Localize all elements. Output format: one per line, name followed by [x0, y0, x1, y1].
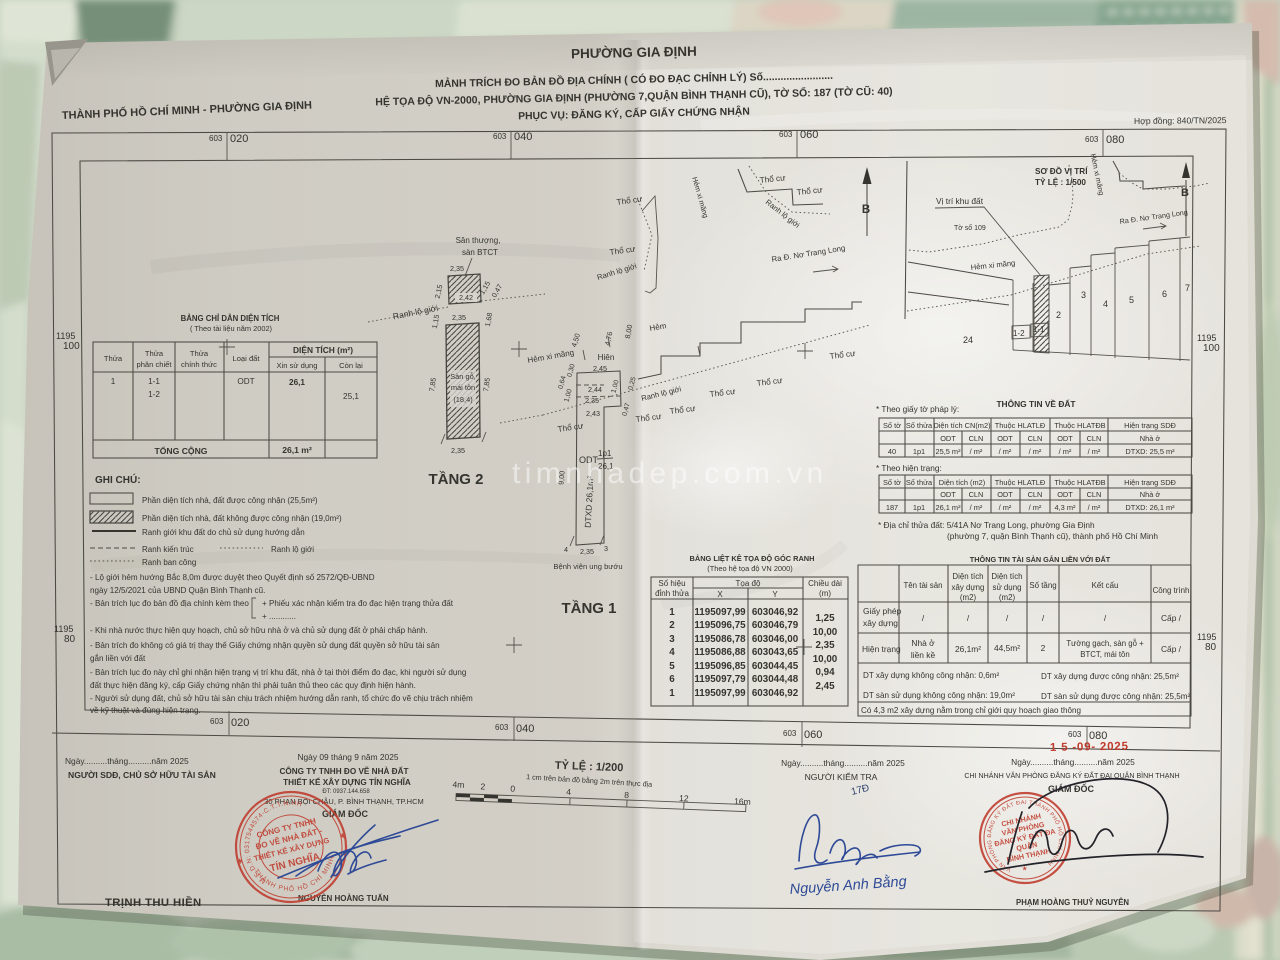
- svg-text:10,00: 10,00: [813, 654, 838, 665]
- svg-text:1195096,75: 1195096,75: [694, 620, 746, 631]
- svg-text:26,1m²: 26,1m²: [955, 644, 981, 654]
- svg-text:Tờ số 109: Tờ số 109: [954, 223, 986, 232]
- svg-text:7: 7: [1185, 283, 1190, 293]
- svg-text:2: 2: [1056, 310, 1061, 320]
- svg-text:Loại đất: Loại đất: [232, 354, 260, 363]
- svg-text:1195097,99: 1195097,99: [694, 688, 746, 699]
- svg-text:Công trình: Công trình: [1153, 586, 1190, 595]
- svg-text:Ngày 09 tháng 9 năm 2025: Ngày 09 tháng 9 năm 2025: [297, 752, 398, 762]
- svg-text:- Người sử dụng đất, chủ sở hữ: - Người sử dụng đất, chủ sở hữu tài sản …: [90, 694, 473, 703]
- svg-text:TỶ LỆ : 1/500: TỶ LỆ : 1/500: [1035, 176, 1086, 187]
- svg-text:+ Phiếu xác nhận kiểm tra đo đ: + Phiếu xác nhận kiểm tra đo đạc hiện tr…: [262, 599, 454, 608]
- svg-text:1195: 1195: [54, 624, 73, 634]
- svg-text:603046,00: 603046,00: [752, 634, 799, 645]
- svg-text:/ m²: / m²: [1088, 503, 1101, 512]
- svg-text:1: 1: [669, 607, 675, 618]
- svg-text:Phần diện tích nhà, đất không: Phần diện tích nhà, đất không được công …: [142, 514, 342, 523]
- svg-text:DT xây dựng không công nhận: 0: DT xây dựng không công nhận: 0,6m²: [863, 671, 1000, 680]
- svg-text:Thuộc HLATLĐ: Thuộc HLATLĐ: [995, 478, 1045, 487]
- svg-text:1195086,78: 1195086,78: [694, 634, 746, 645]
- svg-text:Ranh ban công: Ranh ban công: [142, 558, 196, 567]
- svg-text:ODT: ODT: [940, 434, 956, 443]
- svg-text:đỉnh thửa: đỉnh thửa: [655, 589, 689, 598]
- svg-text:8: 8: [624, 790, 629, 800]
- svg-text:1195: 1195: [1197, 333, 1216, 343]
- svg-text:(m): (m): [819, 589, 831, 598]
- svg-text:- Bản trích lục đo bản đồ địa: - Bản trích lục đo bản đồ địa chính kèm …: [90, 599, 249, 608]
- svg-text:Hiên: Hiên: [598, 353, 615, 362]
- svg-text:Còn lại: Còn lại: [339, 361, 363, 370]
- svg-text:DT xây dựng được công nhận: 25: DT xây dựng được công nhận: 25,5m²: [1041, 672, 1179, 681]
- svg-text:Tên tài sản: Tên tài sản: [903, 581, 942, 590]
- svg-text:Số tờ: Số tờ: [883, 421, 901, 430]
- svg-text:5: 5: [669, 661, 675, 672]
- svg-text:2: 2: [669, 620, 675, 631]
- svg-text:603046,92: 603046,92: [752, 688, 799, 699]
- svg-text:4: 4: [1103, 299, 1108, 309]
- svg-text:1 5 -09- 2025: 1 5 -09- 2025: [1050, 741, 1129, 754]
- svg-text:Cấp /: Cấp /: [1161, 644, 1182, 654]
- svg-text:ĐT: 0937.144.658: ĐT: 0937.144.658: [322, 789, 370, 795]
- svg-text:B: B: [1181, 187, 1189, 199]
- svg-text:603: 603: [495, 723, 509, 732]
- svg-text:Giấy phép: Giấy phép: [863, 606, 902, 616]
- svg-text:+ ............: + ............: [262, 612, 296, 621]
- svg-text:Số tầng: Số tầng: [1029, 581, 1056, 590]
- svg-text:24: 24: [963, 335, 973, 345]
- svg-text:/ m²: / m²: [970, 447, 983, 456]
- svg-text:2,44: 2,44: [588, 385, 602, 394]
- svg-text:040: 040: [514, 131, 532, 143]
- svg-text:Sân thượng,: Sân thượng,: [456, 236, 501, 245]
- svg-text:PHẠM HOÀNG THUỶ NGUYÊN: PHẠM HOÀNG THUỶ NGUYÊN: [1016, 898, 1129, 907]
- svg-text:603046,92: 603046,92: [752, 607, 799, 618]
- svg-text:1-1: 1-1: [1033, 325, 1045, 334]
- svg-text:4m: 4m: [452, 779, 464, 789]
- svg-text:020: 020: [231, 717, 249, 729]
- svg-text:Nhà ở: Nhà ở: [1140, 434, 1161, 443]
- svg-text:DTXD: 25,5 m²: DTXD: 25,5 m²: [1125, 447, 1175, 456]
- svg-text:phân chiết: phân chiết: [136, 360, 172, 369]
- svg-text:2,35: 2,35: [450, 264, 464, 273]
- svg-text:3: 3: [669, 634, 675, 645]
- svg-text:Hiện trạng: Hiện trạng: [862, 644, 901, 654]
- svg-text:2,43: 2,43: [586, 409, 600, 418]
- svg-text:(m2): (m2): [960, 593, 977, 602]
- svg-text:ODT: ODT: [1057, 434, 1073, 443]
- svg-text:đất thực hiện đăng ký, cấp Giấ: đất thực hiện đăng ký, cấp Giấy chứng nh…: [90, 681, 416, 690]
- svg-text:- Bản trích đo không có giá tr: - Bản trích đo không có giá trị thay thế…: [90, 641, 440, 650]
- svg-text:Bệnh viện ung bướu: Bệnh viện ung bướu: [553, 562, 622, 571]
- svg-text:Sàn gỗ,: Sàn gỗ,: [450, 372, 475, 381]
- svg-text:CLN: CLN: [1028, 434, 1043, 443]
- svg-text:2,35: 2,35: [815, 640, 835, 651]
- svg-text:ODT: ODT: [237, 377, 254, 386]
- svg-text:Y: Y: [772, 590, 778, 599]
- svg-text:Số tờ: Số tờ: [883, 478, 901, 487]
- svg-text:603: 603: [779, 130, 793, 139]
- svg-text:2,45: 2,45: [815, 681, 835, 692]
- svg-text:SƠ ĐỒ VỊ TRÍ: SƠ ĐỒ VỊ TRÍ: [1035, 165, 1088, 176]
- svg-text:CLN: CLN: [969, 490, 984, 499]
- svg-text:(phường 7, quận Bình Thạnh cũ): (phường 7, quận Bình Thạnh cũ), thành ph…: [947, 531, 1158, 541]
- svg-text:chính thức: chính thức: [181, 360, 217, 369]
- svg-text:603: 603: [210, 717, 224, 726]
- svg-text:/ m²: / m²: [1059, 447, 1072, 456]
- svg-text:TỶ LỆ : 1/200: TỶ LỆ : 1/200: [555, 759, 624, 774]
- svg-text:80: 80: [64, 634, 76, 645]
- svg-text:TẦNG 2: TẦNG 2: [428, 471, 483, 488]
- svg-text:/ m²: / m²: [1029, 447, 1042, 456]
- svg-text:Thuộc HLATĐB: Thuộc HLATĐB: [1054, 421, 1105, 430]
- svg-text:10,00: 10,00: [813, 627, 838, 638]
- svg-text:CLN: CLN: [1087, 490, 1102, 499]
- svg-text:1195097,99: 1195097,99: [694, 607, 746, 618]
- svg-text:603: 603: [783, 729, 797, 738]
- svg-text:6: 6: [669, 674, 675, 685]
- svg-text:603: 603: [493, 132, 507, 141]
- svg-text:16m: 16m: [734, 796, 751, 807]
- svg-text:BẢNG CHỈ DẪN DIỆN TÍCH: BẢNG CHỈ DẪN DIỆN TÍCH: [181, 314, 280, 323]
- svg-text:603: 603: [1085, 135, 1099, 144]
- svg-text:Số thửa: Số thửa: [906, 421, 933, 430]
- svg-text:1195096,85: 1195096,85: [694, 661, 746, 672]
- svg-text:4: 4: [566, 787, 571, 797]
- svg-text:* Địa chỉ thửa đất: 5/41A Nơ T: * Địa chỉ thửa đất: 5/41A Nơ Trang Long,…: [878, 520, 1095, 530]
- svg-text:Nhà ở: Nhà ở: [1140, 490, 1161, 499]
- svg-text:ngày 12/5/2021 của UBND Quận B: ngày 12/5/2021 của UBND Quận Bình Thạnh …: [90, 586, 265, 595]
- svg-text:100: 100: [63, 341, 80, 352]
- svg-text:Diện tích: Diện tích: [952, 572, 983, 581]
- svg-text:40: 40: [888, 447, 896, 456]
- svg-text:1195: 1195: [1197, 632, 1216, 642]
- svg-text:Thửa: Thửa: [104, 354, 123, 363]
- svg-text:1195097,79: 1195097,79: [694, 674, 746, 685]
- svg-text:1195086,88: 1195086,88: [694, 647, 746, 658]
- svg-text:TẦNG 1: TẦNG 1: [561, 600, 616, 617]
- svg-text:040: 040: [516, 723, 534, 735]
- svg-text:1p1: 1p1: [913, 503, 925, 512]
- svg-text:mái tôn: mái tôn: [451, 383, 475, 392]
- svg-text:(Theo hệ tọa độ VN 2000): (Theo hệ tọa độ VN 2000): [707, 564, 792, 573]
- svg-text:sử dụng: sử dụng: [993, 583, 1022, 592]
- svg-text:603043,65: 603043,65: [752, 647, 799, 658]
- svg-text:THÔNG TIN VỀ ĐẤT: THÔNG TIN VỀ ĐẤT: [996, 398, 1076, 409]
- svg-text:4,3 m²: 4,3 m²: [1055, 503, 1076, 512]
- svg-text:Hiện trạng SDĐ: Hiện trạng SDĐ: [1124, 478, 1176, 487]
- svg-text:CHI NHÁNH VĂN PHÒNG ĐĂNG KÝ ĐẤ: CHI NHÁNH VĂN PHÒNG ĐĂNG KÝ ĐẤT ĐAI QUẬN…: [964, 770, 1179, 780]
- svg-text:1-1: 1-1: [148, 377, 160, 386]
- svg-text:ODT: ODT: [997, 490, 1013, 499]
- svg-text:2: 2: [1041, 643, 1046, 653]
- svg-text:CLN: CLN: [1028, 490, 1043, 499]
- svg-text:B: B: [862, 204, 870, 216]
- svg-text:Tường gạch, sàn gỗ +: Tường gạch, sàn gỗ +: [1066, 639, 1144, 648]
- svg-text:080: 080: [1106, 134, 1124, 146]
- svg-text:TRỊNH THU HIỀN: TRỊNH THU HIỀN: [105, 896, 202, 909]
- svg-text:Chiều dài: Chiều dài: [808, 579, 842, 588]
- svg-text:Vị trí khu đất: Vị trí khu đất: [936, 196, 984, 206]
- svg-text:Nhà ở: Nhà ở: [911, 638, 935, 648]
- svg-text:BTCT, mái tôn: BTCT, mái tôn: [1080, 650, 1129, 659]
- svg-text:0: 0: [510, 784, 515, 794]
- svg-text:(18,4): (18,4): [453, 395, 472, 404]
- svg-text:DIỆN TÍCH (m²): DIỆN TÍCH (m²): [293, 344, 353, 355]
- svg-text:/ m²: / m²: [999, 447, 1012, 456]
- svg-text:4: 4: [669, 647, 675, 658]
- svg-text:BẢNG LIỆT KÊ TỌA ĐỘ GÓC RANH: BẢNG LIỆT KÊ TỌA ĐỘ GÓC RANH: [690, 554, 815, 563]
- svg-text:xây dựng: xây dựng: [952, 583, 985, 592]
- svg-text:603: 603: [209, 134, 223, 143]
- svg-text:5: 5: [1129, 295, 1134, 305]
- svg-text:- Khi nhà nước thực hiện quy h: - Khi nhà nước thực hiện quy hoạch, chủ …: [90, 626, 428, 635]
- svg-text:1,25: 1,25: [815, 613, 835, 624]
- svg-text:Thuộc HLATĐB: Thuộc HLATĐB: [1054, 478, 1105, 487]
- svg-text:25,5 m²: 25,5 m²: [935, 447, 961, 456]
- svg-text:2,35: 2,35: [451, 446, 465, 455]
- svg-text:/ m²: / m²: [1088, 447, 1101, 456]
- svg-text:( Theo tài liệu năm 2002): ( Theo tài liệu năm 2002): [190, 324, 272, 333]
- svg-text:- Lộ giới hẻm hướng Bắc 8,0m đ: - Lộ giới hẻm hướng Bắc 8,0m được duyệt …: [90, 573, 375, 582]
- svg-text:100: 100: [1203, 343, 1220, 354]
- svg-text:Ranh kiến trúc: Ranh kiến trúc: [142, 545, 194, 554]
- svg-text:DT sàn sử dụng được công nhận:: DT sàn sử dụng được công nhận: 25,5m²: [1041, 692, 1190, 701]
- svg-text:Phần diện tích nhà, đất được c: Phần diện tích nhà, đất được công nhận (…: [142, 496, 318, 505]
- svg-text:- Bản trích lục đo này chỉ ghi: - Bản trích lục đo này chỉ ghi nhận hiện…: [90, 668, 466, 677]
- svg-text:Tọa độ: Tọa độ: [736, 579, 761, 588]
- svg-text:3: 3: [1081, 290, 1086, 300]
- svg-text:1p1: 1p1: [913, 447, 925, 456]
- svg-text:2,35: 2,35: [580, 547, 594, 556]
- svg-text:ODT: ODT: [997, 434, 1013, 443]
- svg-text:Ngày..........tháng..........n: Ngày..........tháng..........năm 2025: [1011, 757, 1135, 767]
- svg-text:Diện tích (m2): Diện tích (m2): [939, 478, 985, 487]
- svg-text:Thuộc HLATLĐ: Thuộc HLATLĐ: [995, 421, 1045, 430]
- svg-text:187: 187: [886, 503, 898, 512]
- svg-text:1195: 1195: [56, 331, 75, 341]
- svg-text:1-2: 1-2: [1013, 329, 1025, 338]
- svg-text:603044,48: 603044,48: [752, 674, 799, 685]
- svg-text:Có 4,3 m2 xây dựng nằm trong c: Có 4,3 m2 xây dựng nằm trong chỉ giới qu…: [861, 706, 1081, 715]
- svg-text:Kết cấu: Kết cấu: [1092, 581, 1119, 590]
- svg-text:0,94: 0,94: [815, 667, 835, 678]
- svg-text:603044,45: 603044,45: [752, 661, 799, 672]
- svg-text:603046,79: 603046,79: [752, 620, 799, 631]
- svg-text:Ranh lộ giới: Ranh lộ giới: [271, 545, 314, 554]
- svg-text:26,1 m²: 26,1 m²: [935, 503, 961, 512]
- svg-text:2,42: 2,42: [459, 293, 473, 302]
- svg-text:26,1: 26,1: [289, 378, 305, 387]
- svg-text:NGƯỜI KIỂM TRA: NGƯỜI KIỂM TRA: [805, 771, 878, 782]
- svg-text:CLN: CLN: [1087, 434, 1102, 443]
- svg-text:X: X: [717, 590, 723, 599]
- svg-text:/ m²: / m²: [1029, 503, 1042, 512]
- svg-text:1-2: 1-2: [148, 390, 160, 399]
- svg-text:ODT: ODT: [940, 490, 956, 499]
- svg-text:NGƯỜI SDĐ, CHỦ SỞ HỮU TÀI SẢN: NGƯỜI SDĐ, CHỦ SỞ HỮU TÀI SẢN: [68, 769, 216, 780]
- svg-text:liền kề: liền kề: [911, 650, 936, 660]
- svg-text:TỔNG CỘNG: TỔNG CỘNG: [155, 445, 208, 456]
- svg-text:6: 6: [1162, 289, 1167, 299]
- svg-text:GHI CHÚ:: GHI CHÚ:: [95, 473, 141, 486]
- svg-text:Ranh giới khu đất do chủ sử dụ: Ranh giới khu đất do chủ sử dụng hướng d…: [142, 528, 305, 537]
- svg-text:Ngày..........tháng..........n: Ngày..........tháng..........năm 2025: [65, 756, 189, 766]
- svg-text:3: 3: [604, 544, 608, 553]
- svg-text:1: 1: [111, 377, 116, 386]
- svg-text:* Theo hiện trạng:: * Theo hiện trạng:: [876, 463, 942, 473]
- svg-text:ODT: ODT: [1057, 490, 1073, 499]
- svg-text:603: 603: [1068, 730, 1082, 739]
- svg-text:44,5m²: 44,5m²: [994, 643, 1020, 653]
- svg-text:sàn BTCT: sàn BTCT: [462, 248, 498, 257]
- svg-text:26,1 m²: 26,1 m²: [282, 445, 312, 455]
- svg-text:THIẾT KẾ XÂY DỰNG TÍN NGHĨA: THIẾT KẾ XÂY DỰNG TÍN NGHĨA: [283, 776, 411, 787]
- svg-text:THÔNG TIN TÀI SẢN GẮN LIỀN VỚI: THÔNG TIN TÀI SẢN GẮN LIỀN VỚI ĐẤT: [970, 554, 1111, 564]
- svg-text:060: 060: [800, 129, 818, 141]
- svg-text:/ m²: / m²: [970, 503, 983, 512]
- svg-text:/ m²: / m²: [999, 503, 1012, 512]
- svg-text:2: 2: [480, 781, 485, 791]
- svg-text:xây dựng: xây dựng: [863, 618, 898, 628]
- svg-text:timnhadep.com.vn: timnhadep.com.vn: [512, 457, 828, 490]
- svg-text:về kỹ thuật và đúng hiện trạng: về kỹ thuật và đúng hiện trạng.: [90, 706, 201, 715]
- svg-text:Thửa: Thửa: [190, 349, 209, 358]
- svg-text:(m2): (m2): [999, 593, 1016, 602]
- svg-text:gắn liền với đất: gắn liền với đất: [90, 654, 146, 663]
- svg-text:25,1: 25,1: [343, 392, 359, 401]
- svg-text:Hợp đồng: 840/TN/2025: Hợp đồng: 840/TN/2025: [1134, 115, 1227, 126]
- svg-text:DT sàn sử dụng không công nhận: DT sàn sử dụng không công nhận: 19,0m²: [863, 691, 1015, 700]
- svg-text:CÔNG TY TNHH ĐO VẼ NHÀ ĐẤT: CÔNG TY TNHH ĐO VẼ NHÀ ĐẤT: [279, 765, 408, 776]
- svg-text:Hiện trạng SDĐ: Hiện trạng SDĐ: [1124, 421, 1176, 430]
- svg-text:Ngày..........tháng..........n: Ngày..........tháng..........năm 2025: [781, 758, 905, 768]
- svg-text:020: 020: [230, 133, 248, 145]
- svg-text:Số hiệu: Số hiệu: [658, 579, 685, 588]
- svg-text:CLN: CLN: [969, 434, 984, 443]
- svg-text:1: 1: [669, 688, 675, 699]
- svg-text:060: 060: [804, 729, 822, 741]
- svg-text:DTXD: 26,1 m²: DTXD: 26,1 m²: [1125, 503, 1175, 512]
- svg-text:4: 4: [564, 545, 568, 554]
- svg-text:PHƯỜNG GIA ĐỊNH: PHƯỜNG GIA ĐỊNH: [571, 44, 697, 62]
- svg-text:Xin sử dụng: Xin sử dụng: [277, 361, 318, 370]
- svg-text:80: 80: [1205, 642, 1217, 653]
- svg-text:Số thửa: Số thửa: [906, 478, 933, 487]
- svg-text:Diện tích: Diện tích: [991, 572, 1022, 581]
- svg-text:Diện tích CN(m2): Diện tích CN(m2): [933, 421, 990, 430]
- svg-text:Thửa: Thửa: [145, 349, 164, 358]
- svg-text:* Theo giấy tờ pháp lý:: * Theo giấy tờ pháp lý:: [876, 404, 959, 414]
- svg-text:2,35: 2,35: [452, 313, 466, 322]
- svg-text:Cấp /: Cấp /: [1161, 613, 1182, 623]
